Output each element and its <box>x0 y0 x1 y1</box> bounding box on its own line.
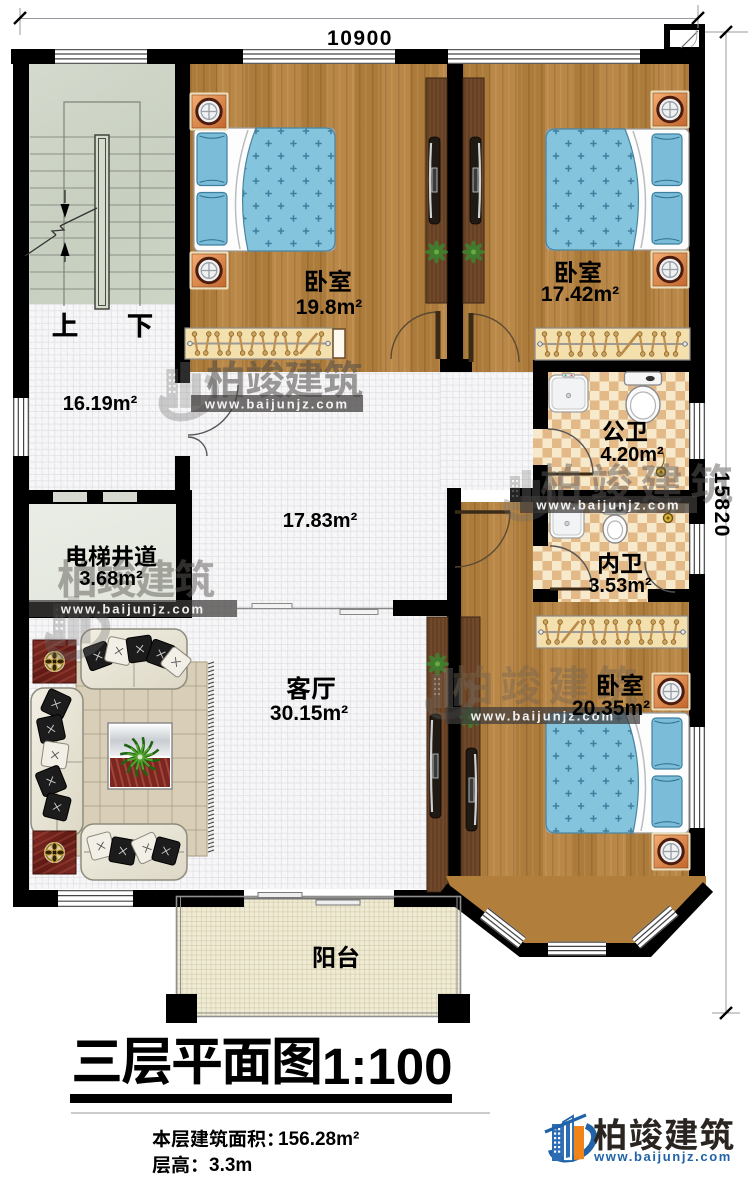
svg-text:www.baijunjz.com: www.baijunjz.com <box>60 602 205 617</box>
svg-text:4.20m²: 4.20m² <box>600 444 664 466</box>
svg-text:3.53m²: 3.53m² <box>588 575 652 597</box>
svg-text:17.83m²: 17.83m² <box>283 510 358 532</box>
svg-text:10900: 10900 <box>327 27 393 50</box>
svg-text:3.3m: 3.3m <box>209 1155 252 1176</box>
svg-text:20.35m²: 20.35m² <box>572 697 650 720</box>
svg-text:17.42m²: 17.42m² <box>541 283 619 306</box>
svg-text:156.28m²: 156.28m² <box>278 1129 359 1150</box>
svg-text:15820: 15820 <box>710 472 733 538</box>
svg-text:1:100: 1:100 <box>322 1038 452 1095</box>
svg-text:16.19m²: 16.19m² <box>63 393 138 415</box>
svg-text:www.baijunjz.com: www.baijunjz.com <box>204 397 349 412</box>
svg-text:www.baijunjz.com: www.baijunjz.com <box>593 1149 732 1164</box>
svg-text:30.15m²: 30.15m² <box>270 702 348 725</box>
svg-text:19.8m²: 19.8m² <box>296 296 363 319</box>
svg-text:www.baijunjz.com: www.baijunjz.com <box>535 498 680 513</box>
svg-text:3.68m²: 3.68m² <box>79 568 143 590</box>
